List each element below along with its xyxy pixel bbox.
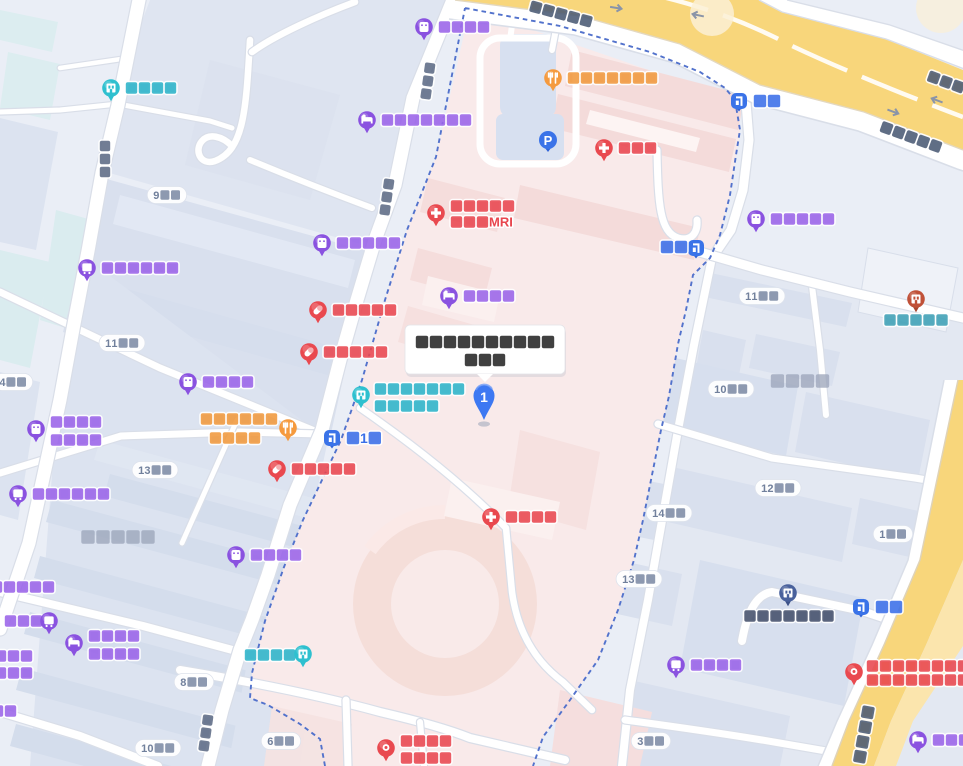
svg-text:1: 1 [141, 743, 147, 755]
svg-text:9: 9 [153, 190, 159, 202]
svg-text:4: 4 [658, 508, 665, 520]
svg-text:1: 1 [745, 291, 751, 303]
svg-text:0: 0 [147, 743, 153, 755]
svg-text:1: 1 [652, 508, 658, 520]
svg-text:P: P [544, 133, 553, 148]
svg-text:6: 6 [267, 736, 273, 748]
svg-text:2: 2 [767, 483, 773, 495]
svg-text:1: 1 [111, 338, 117, 350]
svg-text:8: 8 [180, 677, 186, 689]
svg-text:3: 3 [144, 465, 150, 477]
svg-text:1: 1 [138, 465, 144, 477]
svg-text:MRI: MRI [489, 215, 513, 230]
svg-text:1: 1 [714, 384, 720, 396]
svg-text:1: 1 [360, 430, 368, 446]
svg-text:1: 1 [761, 483, 767, 495]
svg-text:1: 1 [879, 529, 885, 541]
svg-text:0: 0 [720, 384, 726, 396]
svg-text:4: 4 [0, 377, 6, 389]
svg-text:3: 3 [628, 574, 634, 586]
svg-text:3: 3 [637, 736, 643, 748]
svg-text:1: 1 [622, 574, 628, 586]
svg-text:1: 1 [751, 291, 757, 303]
svg-text:1: 1 [480, 389, 488, 405]
svg-text:1: 1 [105, 338, 111, 350]
